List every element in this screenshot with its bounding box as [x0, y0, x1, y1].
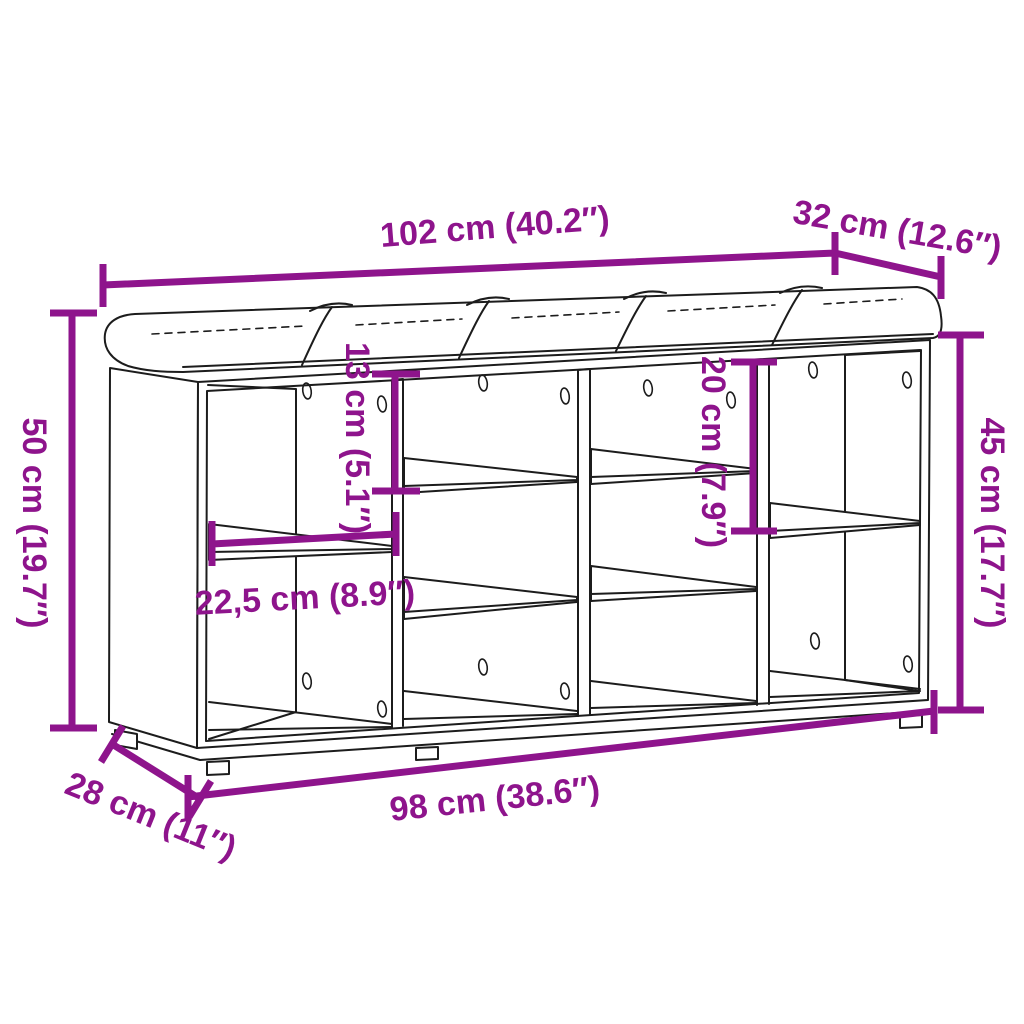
dim-inner-right-label: 20 cm (7.9″): [694, 356, 732, 548]
bench-illustration: [105, 286, 942, 775]
side-panel: [109, 368, 198, 748]
dim-bottom-width-label: 98 cm (38.6″): [388, 769, 602, 829]
dim-inner-upper-label: 13 cm (5.1″): [338, 342, 376, 534]
front-face: [197, 340, 930, 748]
cabinet: [109, 340, 930, 775]
dim-bottom-depth-label: 28 cm (11″): [60, 765, 242, 868]
dim-left-height-line: [50, 313, 97, 728]
product-dimension-diagram: 102 cm (40.2″) 32 cm (12.6″) 50 cm (19.7…: [0, 0, 1024, 1024]
dim-left-height-label: 50 cm (19.7″): [15, 418, 53, 629]
dimension-diagram-svg: 102 cm (40.2″) 32 cm (12.6″) 50 cm (19.7…: [0, 0, 1024, 1024]
dim-top-width-label: 102 cm (40.2″): [379, 199, 611, 255]
dim-right-height-label: 45 cm (17.7″): [973, 418, 1011, 629]
